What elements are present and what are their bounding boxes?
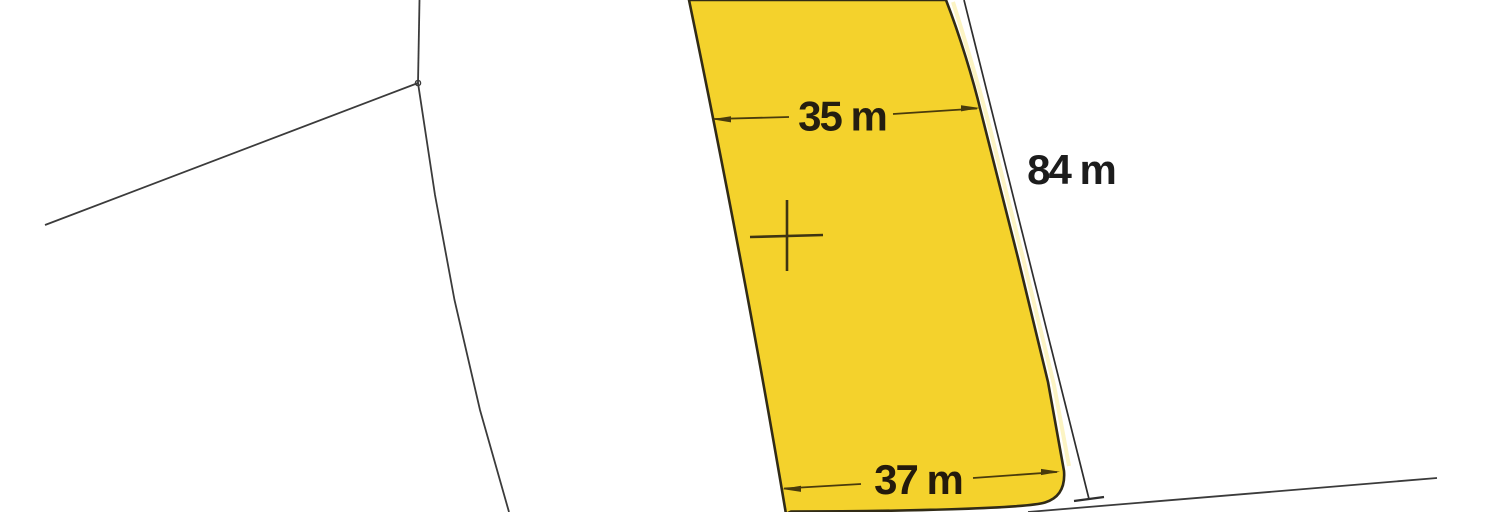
svg-text:37 m: 37 m <box>874 456 962 503</box>
svg-text:35 m: 35 m <box>798 93 886 140</box>
svg-text:84 m: 84 m <box>1027 146 1115 193</box>
